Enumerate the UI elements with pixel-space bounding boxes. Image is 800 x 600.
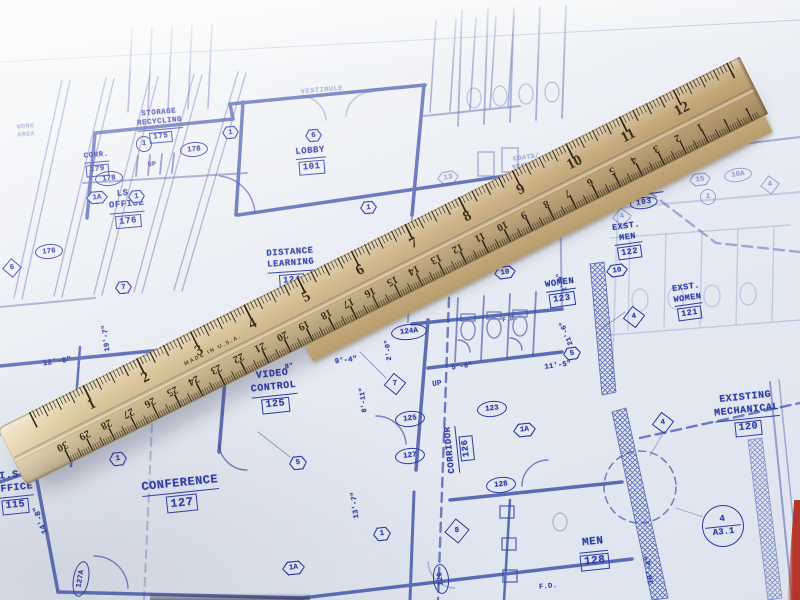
- dimension-label: 19'-7": [102, 324, 113, 352]
- room-label: MEN128: [578, 535, 611, 571]
- room-label: EXST.WOMEN121: [671, 280, 704, 321]
- ruler-inch-number: 7: [407, 234, 421, 253]
- ref-tag-hex: 7: [114, 280, 132, 294]
- ruler-inch-number: 2: [138, 369, 152, 388]
- ruler-cm-number: 3: [651, 142, 661, 155]
- room-label: EXISTINGMECHANICAL120: [712, 389, 781, 439]
- misc-label: F.D.: [502, 314, 518, 323]
- ref-tag-oval: 128: [485, 475, 517, 494]
- ref-tag-oval: 126: [431, 563, 450, 595]
- dimension-label: 8'-11": [359, 387, 370, 413]
- dimension-label: 18'-4": [644, 555, 656, 585]
- ruler-cm-number: 5: [607, 164, 617, 177]
- ref-tag-diamond: 8: [445, 519, 469, 543]
- ref-tag-circle: 1: [700, 189, 716, 205]
- ruler-cm-number: 8: [541, 197, 551, 210]
- ref-tag-hex: 5: [562, 345, 582, 360]
- dimension-label: 11'-5": [544, 360, 572, 372]
- ref-tag-oval: 123: [476, 399, 508, 418]
- ref-tag-detail: 4A3.1: [700, 503, 746, 549]
- dimension-label: 13'-7": [351, 491, 362, 519]
- ref-tag-hex: 1: [372, 526, 391, 542]
- ref-tag-diamond: 7: [384, 373, 406, 395]
- ruler-inch-number: 9: [514, 181, 528, 200]
- ref-tag-hex: 1A: [512, 422, 536, 438]
- ruler-cm-number: 7: [563, 186, 573, 199]
- photo-bottom-shadow: [150, 593, 310, 600]
- ref-tag-diamond: 6: [2, 258, 22, 278]
- ruler-cm-number: 1: [694, 120, 704, 133]
- ruler-inch-number: 5: [299, 288, 313, 307]
- ruler-inch-number: 8: [460, 208, 474, 227]
- room-label: CORRIDOR126: [442, 424, 475, 474]
- ref-tag-hex: 15: [688, 171, 712, 187]
- room-label: WORKAREA: [17, 122, 36, 139]
- ref-tag-oval: 127: [394, 446, 426, 465]
- misc-label: UP: [147, 161, 156, 170]
- ruler-inch-number: 1: [85, 396, 99, 415]
- misc-label: F.D.: [539, 582, 558, 592]
- ref-tag-oval: 127A: [70, 560, 92, 598]
- dimension-label: 12'-6": [42, 356, 72, 369]
- ref-tag-oval: 124A: [390, 322, 427, 342]
- ref-tag-oval: 125: [394, 409, 426, 428]
- dimension-label: 14'-8": [32, 505, 50, 535]
- ref-tag-hex: 1: [127, 189, 145, 203]
- room-label: CONFERENCE127: [141, 472, 221, 516]
- ref-tag-oval: 176: [34, 242, 63, 259]
- ref-tag-hex: 1A: [85, 190, 108, 205]
- ref-tag-oval: 178: [179, 140, 208, 157]
- misc-label: UP: [432, 379, 442, 389]
- ref-tag-hex: 13: [436, 169, 460, 185]
- dimension-label: 2'-0": [384, 339, 394, 361]
- ruler-cm-number: 4: [629, 153, 639, 166]
- ref-tag-hex: 1A: [281, 560, 305, 576]
- room-label: LOBBY101: [295, 145, 327, 176]
- ruler-cm-number: 9: [519, 208, 529, 221]
- ref-tag-diamond: 4: [623, 306, 646, 329]
- ref-tag-oval: 10A: [723, 166, 753, 184]
- ruler-inch-number: 6: [353, 261, 367, 280]
- ref-tag-hex: 5: [288, 455, 307, 471]
- dimension-label: 21'-6": [559, 320, 576, 346]
- ruler-cm-number: 2: [673, 131, 683, 144]
- ref-tag-hex: 1: [221, 125, 239, 139]
- ref-tag-circle: 1: [136, 136, 152, 152]
- ref-tag-hex: 1: [359, 200, 377, 214]
- ruler-cm-number: 6: [585, 175, 595, 188]
- ref-tag-hex: 6: [304, 128, 322, 142]
- ref-tag-diamond: 4: [760, 175, 780, 195]
- blueprint-photo: WORKAREASTORAGERECYCLING175CORR.179LOBBY…: [0, 0, 800, 600]
- room-label: VESTIBULE: [301, 85, 344, 97]
- ruler-inch-number: 4: [246, 315, 260, 334]
- ref-tag-diamond: 4: [652, 412, 675, 435]
- ref-tag-hex: 10: [605, 262, 629, 278]
- dimension-label: 5'-8": [451, 362, 473, 373]
- dimension-label: 9'-4": [334, 356, 357, 367]
